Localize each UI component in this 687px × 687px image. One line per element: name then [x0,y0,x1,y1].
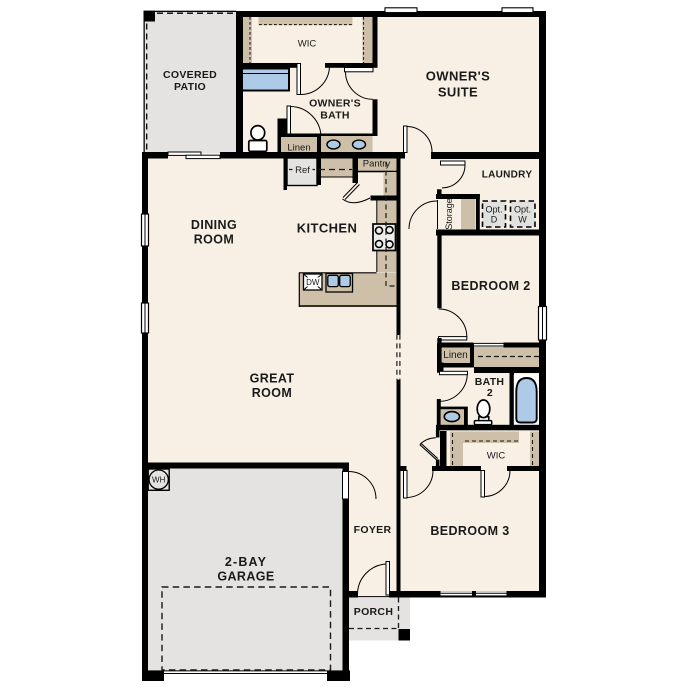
svg-text:Ref: Ref [295,165,310,176]
svg-text:WIC: WIC [487,451,506,462]
svg-text:OWNER'S: OWNER'S [426,69,490,84]
svg-text:COVERED: COVERED [163,69,217,81]
svg-text:OWNER'S: OWNER'S [309,98,361,110]
svg-text:D: D [491,215,498,225]
svg-text:Storage: Storage [444,198,454,230]
svg-text:ROOM: ROOM [194,233,235,247]
svg-text:BEDROOM 3: BEDROOM 3 [430,524,509,538]
svg-text:Opt.: Opt. [485,205,502,215]
svg-text:W: W [518,215,527,225]
svg-text:Linen: Linen [443,350,467,361]
svg-text:SUITE: SUITE [438,85,478,100]
svg-text:GREAT: GREAT [250,372,295,386]
svg-text:Linen: Linen [287,143,310,154]
svg-text:BATH: BATH [320,110,350,122]
svg-text:ROOM: ROOM [252,386,293,400]
svg-text:2: 2 [487,387,493,399]
svg-text:GARAGE: GARAGE [217,570,274,584]
svg-text:PATIO: PATIO [174,81,206,93]
svg-text:BEDROOM 2: BEDROOM 2 [451,279,530,293]
svg-text:WH: WH [152,476,166,485]
svg-text:2-BAY: 2-BAY [225,555,267,569]
svg-text:PORCH: PORCH [354,606,393,618]
svg-text:Opt.: Opt. [514,205,531,215]
svg-text:DINING: DINING [191,218,237,232]
svg-text:LAUNDRY: LAUNDRY [482,170,533,181]
svg-text:WIC: WIC [298,39,317,50]
svg-text:KITCHEN: KITCHEN [297,221,358,236]
svg-text:FOYER: FOYER [354,524,392,536]
svg-text:DW: DW [306,278,320,287]
